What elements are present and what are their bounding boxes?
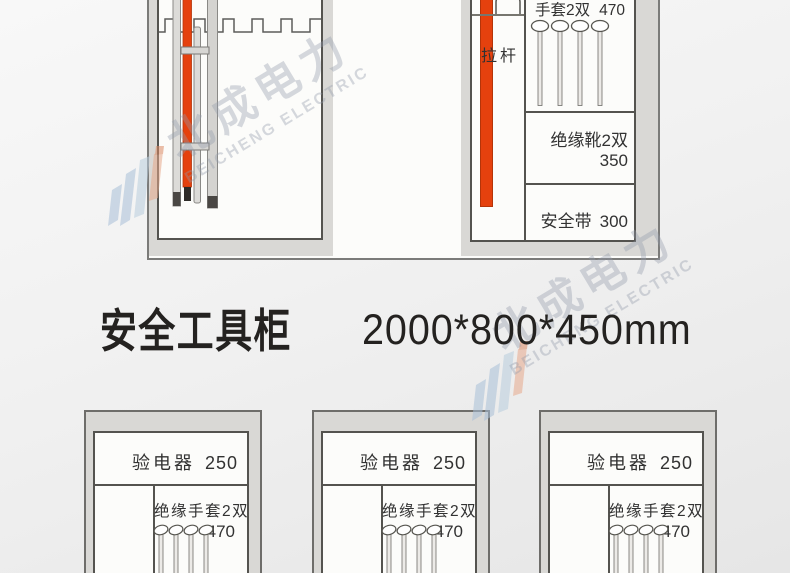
glove-hangers-icon	[528, 18, 628, 108]
bottom-cabinet: 验电器 250 绝缘手套2双 470	[539, 410, 717, 573]
shelf-section-boots: 绝缘靴2双 350	[526, 113, 628, 183]
shelf-section-belt: 安全带 300	[526, 207, 628, 232]
pull-rod-label: 拉杆	[481, 42, 519, 66]
bottom-cabinet-panel: 验电器 250 绝缘手套2双 470	[548, 431, 704, 573]
tester-divider	[550, 484, 702, 486]
belt-label: 安全带	[541, 207, 592, 232]
insulated-gloves-label: 绝缘手套2双	[609, 499, 704, 521]
bottom-cabinet-panel: 验电器 250 绝缘手套2双 470	[93, 431, 249, 573]
pull-rod	[480, 0, 493, 207]
crossbar-upper	[181, 47, 209, 54]
insulated-gloves-label: 绝缘手套2双	[382, 499, 477, 521]
gray-rod-left	[173, 0, 181, 206]
page-title: 安全工具柜	[100, 304, 292, 358]
gray-post-tip	[208, 196, 218, 208]
tester-divider	[95, 484, 247, 486]
shelf-compartment-panel: 拉杆 手套2双 470	[470, 0, 636, 242]
crossbar-lower	[181, 143, 209, 150]
tester-section: 验电器 250	[323, 449, 466, 475]
belt-depth: 300	[600, 212, 628, 232]
glove-hangers-icon	[153, 521, 247, 573]
tester-section: 验电器 250	[550, 449, 693, 475]
glove-hangers-icon	[608, 521, 702, 573]
rod-shelf-line	[472, 14, 524, 16]
tester-depth: 250	[660, 453, 693, 474]
glove-hangers-icon	[381, 521, 475, 573]
tester-section: 验电器 250	[95, 449, 238, 475]
tester-depth: 250	[433, 453, 466, 474]
gloves-label: 手套2双	[535, 0, 590, 20]
tester-label: 验电器	[132, 449, 195, 475]
bottom-cabinet: 验电器 250 绝缘手套2双 470	[84, 410, 262, 573]
bottom-cabinet: 验电器 250 绝缘手套2双 470	[312, 410, 490, 573]
shelf-section-gloves: 手套2双 470	[526, 0, 634, 20]
boots-label: 绝缘靴2双	[551, 126, 628, 151]
bottom-cabinet-panel: 验电器 250 绝缘手套2双 470	[321, 431, 477, 573]
page-title-dimensions: 2000*800*450mm	[362, 304, 692, 356]
shelf-divider-2	[526, 183, 634, 185]
rod-compartment-panel	[157, 0, 323, 240]
insulated-gloves-label: 绝缘手套2双	[154, 499, 249, 521]
insulated-rod-tip	[184, 187, 191, 201]
boots-depth: 350	[600, 151, 628, 171]
gray-rod-left-tip	[173, 192, 181, 206]
top-cabinet-right-compartment: 拉杆 手套2双 470	[461, 0, 658, 256]
tester-divider	[323, 484, 475, 486]
insulated-rod-red	[183, 0, 192, 187]
gray-post	[208, 0, 218, 208]
product-diagram-page: 拉杆 手套2双 470	[0, 0, 790, 573]
tester-depth: 250	[205, 453, 238, 474]
top-cabinet: 拉杆 手套2双 470	[147, 0, 660, 260]
tester-label: 验电器	[360, 449, 423, 475]
rod-compartment-illustration	[159, 0, 321, 236]
top-cabinet-left-compartment	[149, 0, 333, 256]
shelf-column: 手套2双 470	[526, 0, 634, 240]
tester-label: 验电器	[587, 449, 650, 475]
